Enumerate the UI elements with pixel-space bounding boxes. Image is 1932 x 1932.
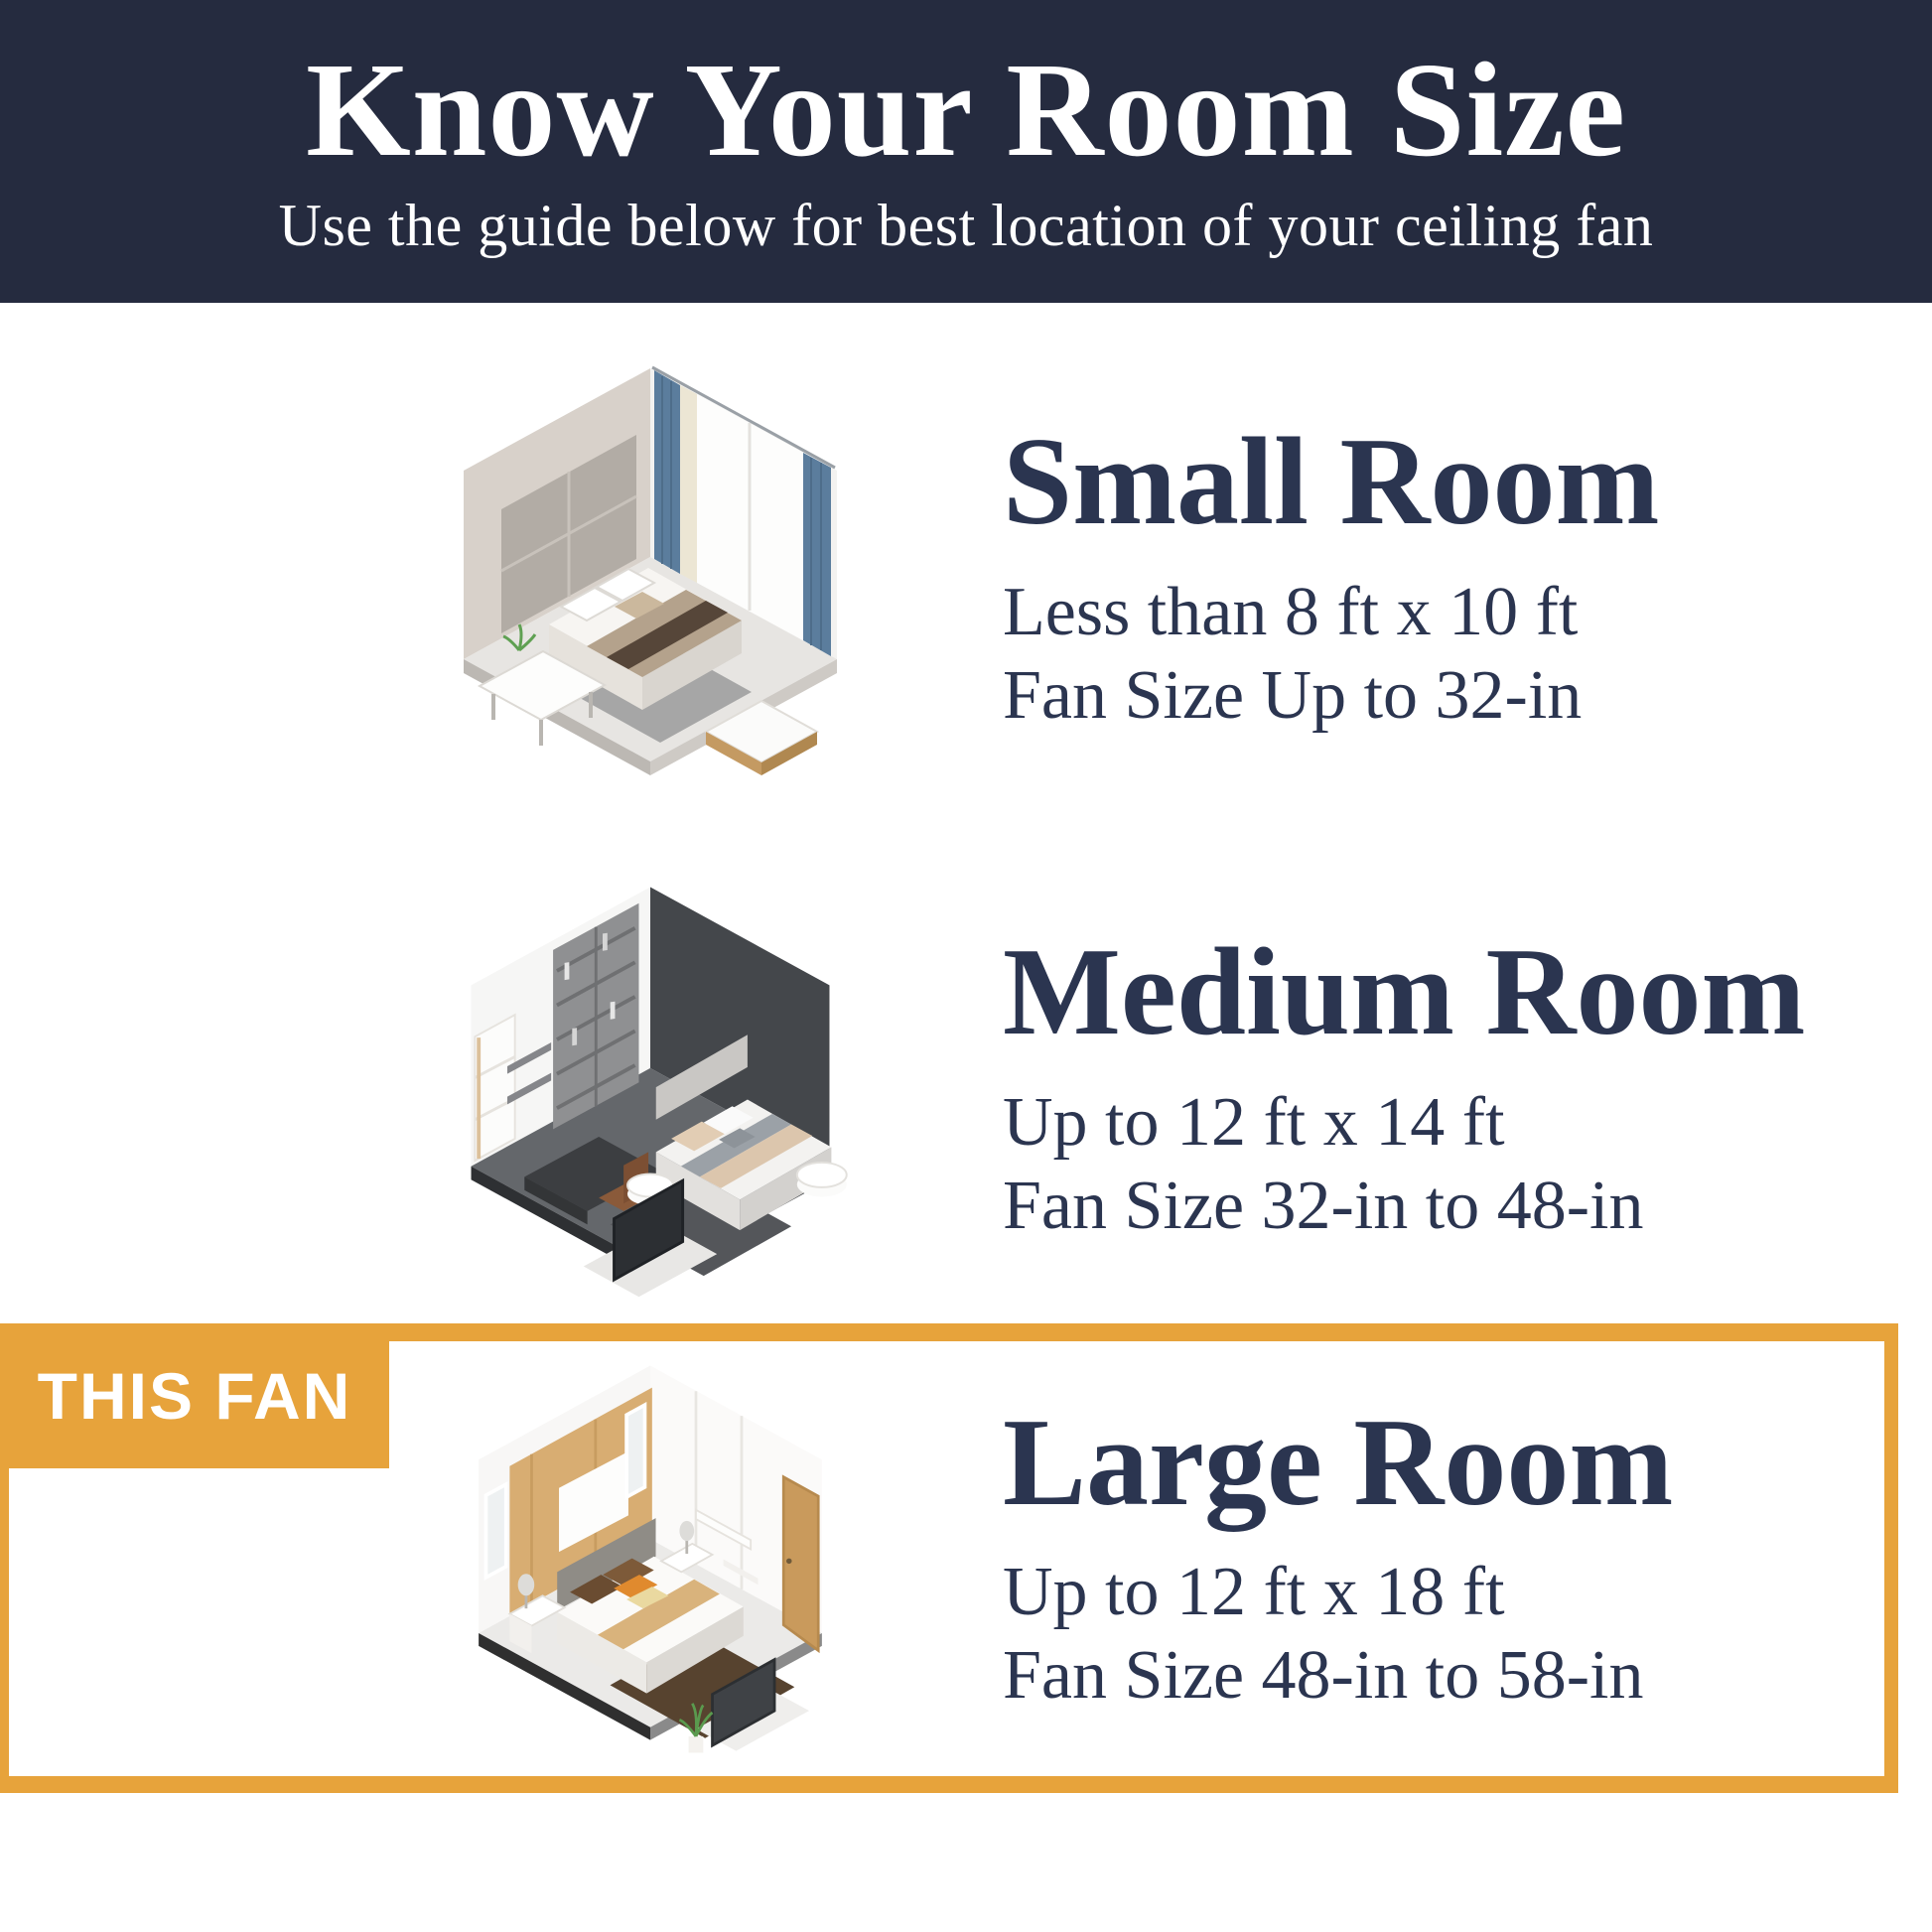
small-room-dimensions: Less than 8 ft x 10 ft (1003, 571, 1660, 654)
this-fan-badge: THIS FAN (0, 1323, 389, 1468)
medium-room-dimensions: Up to 12 ft x 14 ft (1003, 1081, 1805, 1165)
section-small-room: Small Room Less than 8 ft x 10 ft Fan Si… (0, 303, 1932, 854)
wood-door (783, 1476, 818, 1650)
section-medium-room: Medium Room Up to 12 ft x 14 ft Fan Size… (0, 854, 1932, 1323)
isometric-small-bedroom-icon (402, 350, 898, 807)
medium-room-info: Medium Room Up to 12 ft x 14 ft Fan Size… (1003, 929, 1805, 1248)
page-title: Know Your Room Size (306, 43, 1626, 178)
large-room-fan-size: Fan Size 48-in to 58-in (1003, 1634, 1673, 1718)
page-subtitle: Use the guide below for best location of… (279, 192, 1654, 260)
large-room-dimensions: Up to 12 ft x 18 ft (1003, 1551, 1673, 1634)
bottom-margin (0, 1793, 1932, 1932)
large-room-illustration (382, 1349, 918, 1769)
large-room-info: Large Room Up to 12 ft x 18 ft Fan Size … (1003, 1400, 1673, 1719)
isometric-large-bedroom-icon (422, 1349, 879, 1769)
small-room-illustration (382, 350, 918, 807)
small-room-title: Small Room (1003, 419, 1660, 547)
isometric-medium-bedroom-icon (412, 870, 889, 1309)
small-room-info: Small Room Less than 8 ft x 10 ft Fan Si… (1003, 419, 1660, 738)
section-large-room-highlighted: THIS FAN (0, 1323, 1932, 1793)
wardrobe (475, 1015, 514, 1161)
header-banner: Know Your Room Size Use the guide below … (0, 0, 1932, 303)
medium-room-illustration (382, 870, 918, 1309)
this-fan-badge-label: THIS FAN (38, 1358, 352, 1434)
medium-room-fan-size: Fan Size 32-in to 48-in (1003, 1165, 1805, 1248)
medium-room-title: Medium Room (1003, 929, 1805, 1057)
small-room-fan-size: Fan Size Up to 32-in (1003, 654, 1660, 738)
large-room-title: Large Room (1003, 1400, 1673, 1528)
